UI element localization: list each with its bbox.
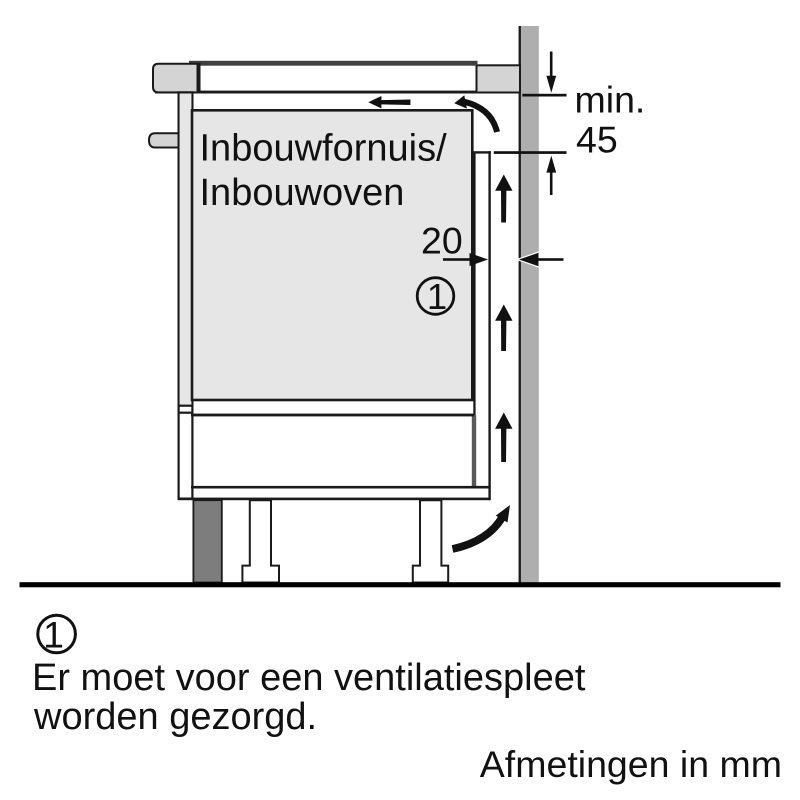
svg-text:Inbouwoven: Inbouwoven [200,172,405,214]
svg-text:20: 20 [421,220,463,262]
svg-text:Inbouwfornuis/: Inbouwfornuis/ [200,127,448,169]
svg-text:worden gezorgd.: worden gezorgd. [33,696,317,738]
svg-text:1: 1 [43,614,64,656]
svg-text:Er moet voor een ventilatiespl: Er moet voor een ventilatiespleet [32,657,586,699]
svg-text:1: 1 [427,276,447,317]
svg-text:min.: min. [575,79,646,121]
svg-text:45: 45 [576,119,618,161]
svg-text:Afmetingen in mm: Afmetingen in mm [480,743,782,785]
